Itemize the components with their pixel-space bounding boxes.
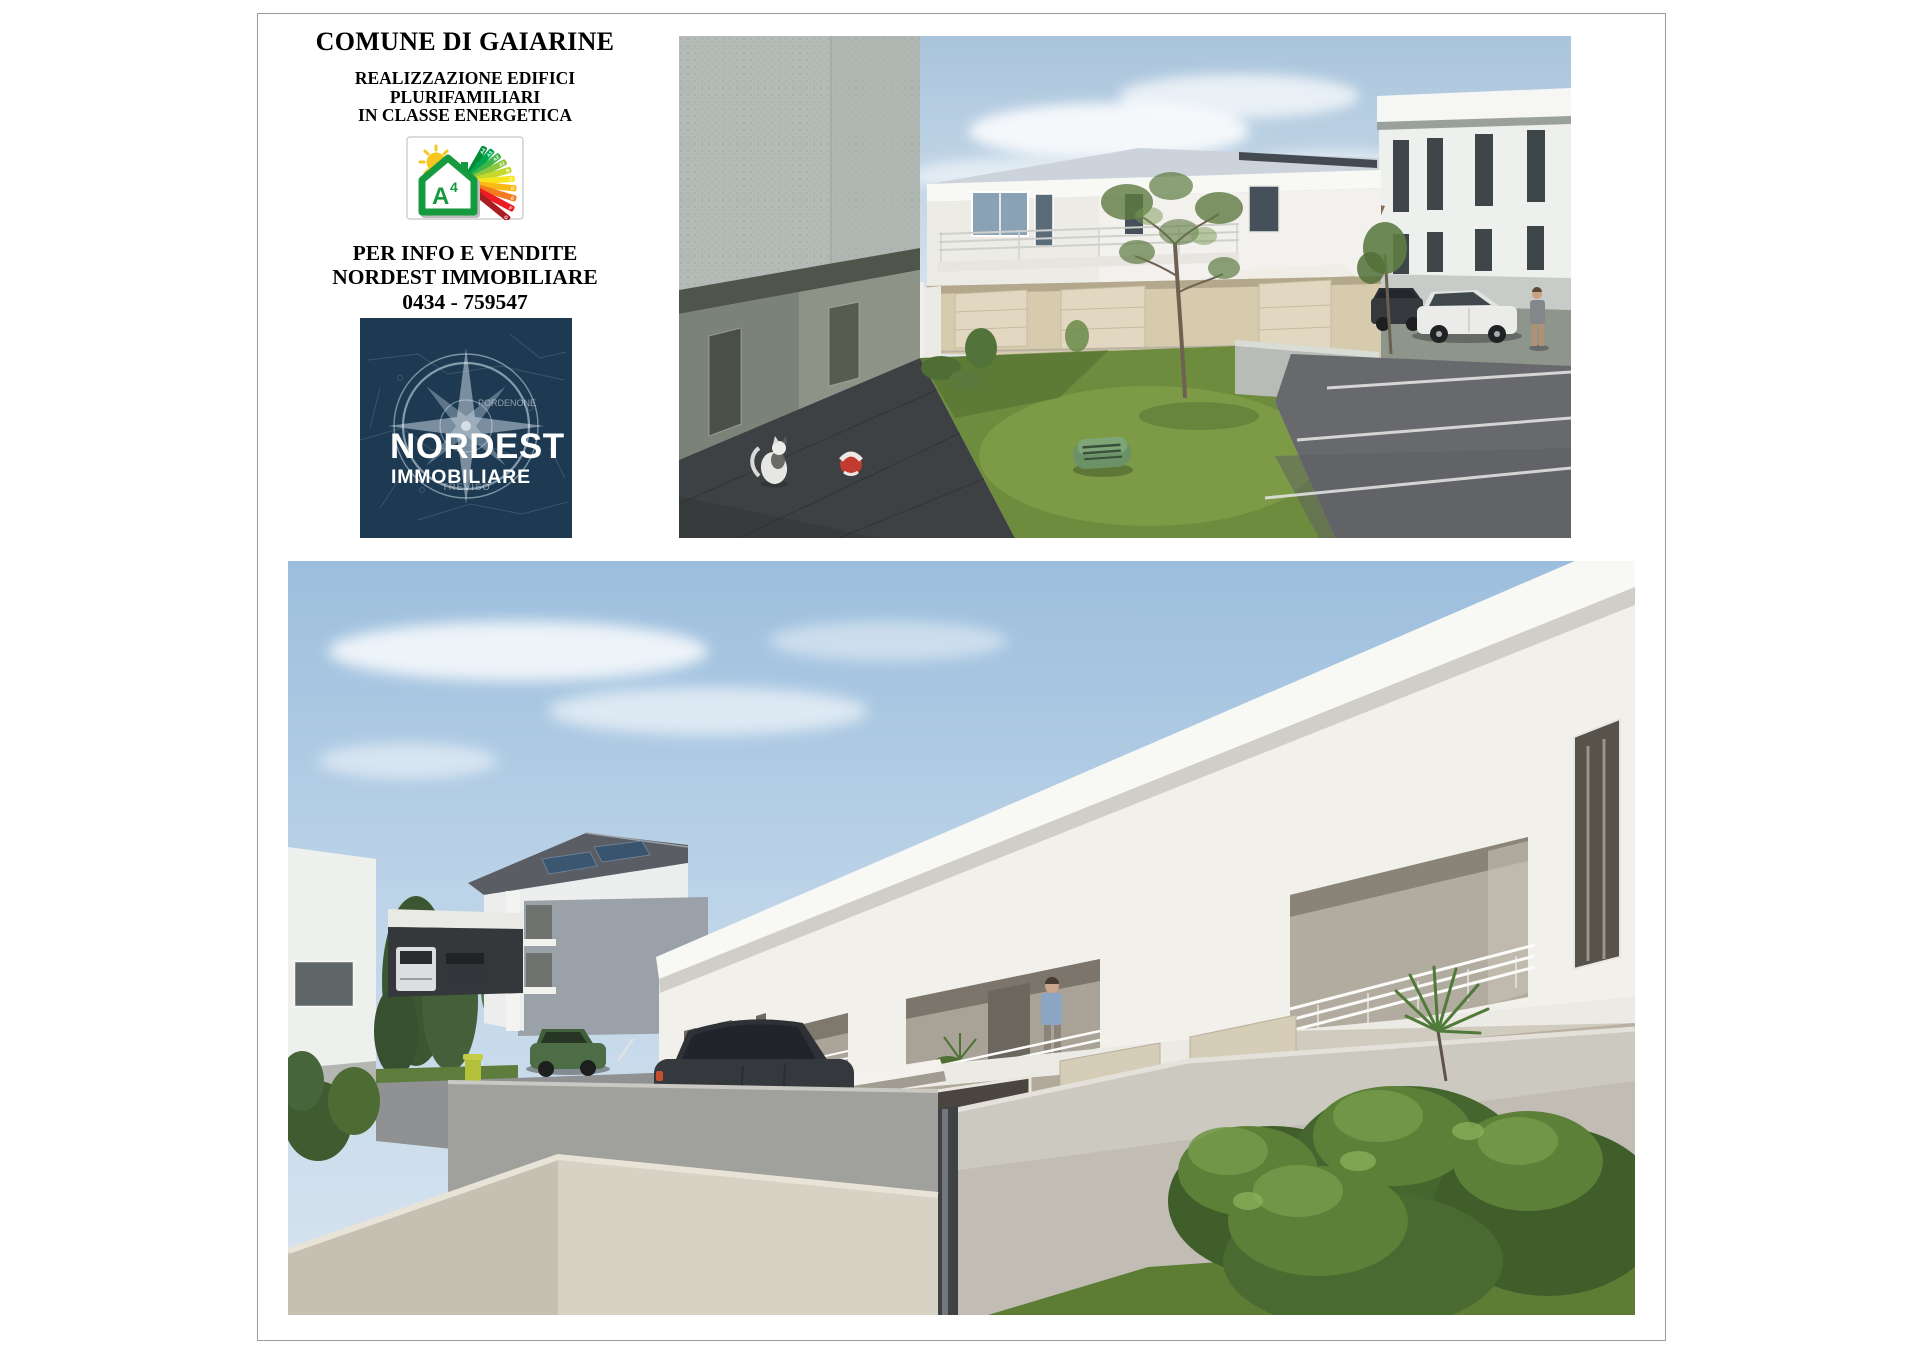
waste-bin [463,1054,483,1083]
window [294,961,354,1007]
robot-lawn-mower [1072,436,1133,477]
info-line-agency: NORDEST IMMOBILIARE [292,265,638,290]
subtitle-line: REALIZZAZIONE EDIFICI [292,70,638,88]
info-line: PER INFO E VENDITE [292,241,638,266]
agency-logo: PORDENONE TREVISO NORDEST IMMOBILIARE [360,318,572,538]
subtitle-line: PLURIFAMILIARI [292,89,638,107]
top-exterior-rendering-photo [679,36,1571,538]
energy-class-exponent: 4 [450,179,458,195]
info-line-phone: 0434 - 759547 [292,290,638,315]
energy-class-icon: A4A3A2A1BCDEFG A 4 [406,136,524,220]
header-column: COMUNE DI GAIARINE REALIZZAZIONE EDIFICI… [292,28,638,314]
taillight [656,1071,663,1081]
flyer-page: COMUNE DI GAIARINE REALIZZAZIONE EDIFICI… [0,0,1920,1356]
subtitle-line: IN CLASSE ENERGETICA [292,107,638,125]
ball [840,453,862,475]
parking-area [1265,354,1571,538]
pole [942,1109,948,1315]
window [1249,186,1279,232]
energy-class-letter: A [432,183,449,210]
carport [388,909,523,997]
agency-logo-name: NORDEST [390,427,565,466]
upper-window-right [1574,719,1620,969]
bottom-exterior-rendering-photo [288,561,1635,1315]
energy-class-badge: A4A3A2A1BCDEFG A 4 [406,136,524,220]
subtitle: REALIZZAZIONE EDIFICI PLURIFAMILIARI IN … [292,70,638,125]
door [829,302,859,386]
contact-info: PER INFO E VENDITE NORDEST IMMOBILIARE 0… [292,241,638,315]
agency-logo-subname: IMMOBILIARE [391,466,531,488]
page-title: COMUNE DI GAIARINE [292,28,638,56]
garage-doors [955,280,1331,354]
compass-logo-icon: PORDENONE TREVISO NORDEST IMMOBILIARE [360,318,572,538]
door [709,328,741,436]
map-label-pordenone: PORDENONE [478,398,536,408]
